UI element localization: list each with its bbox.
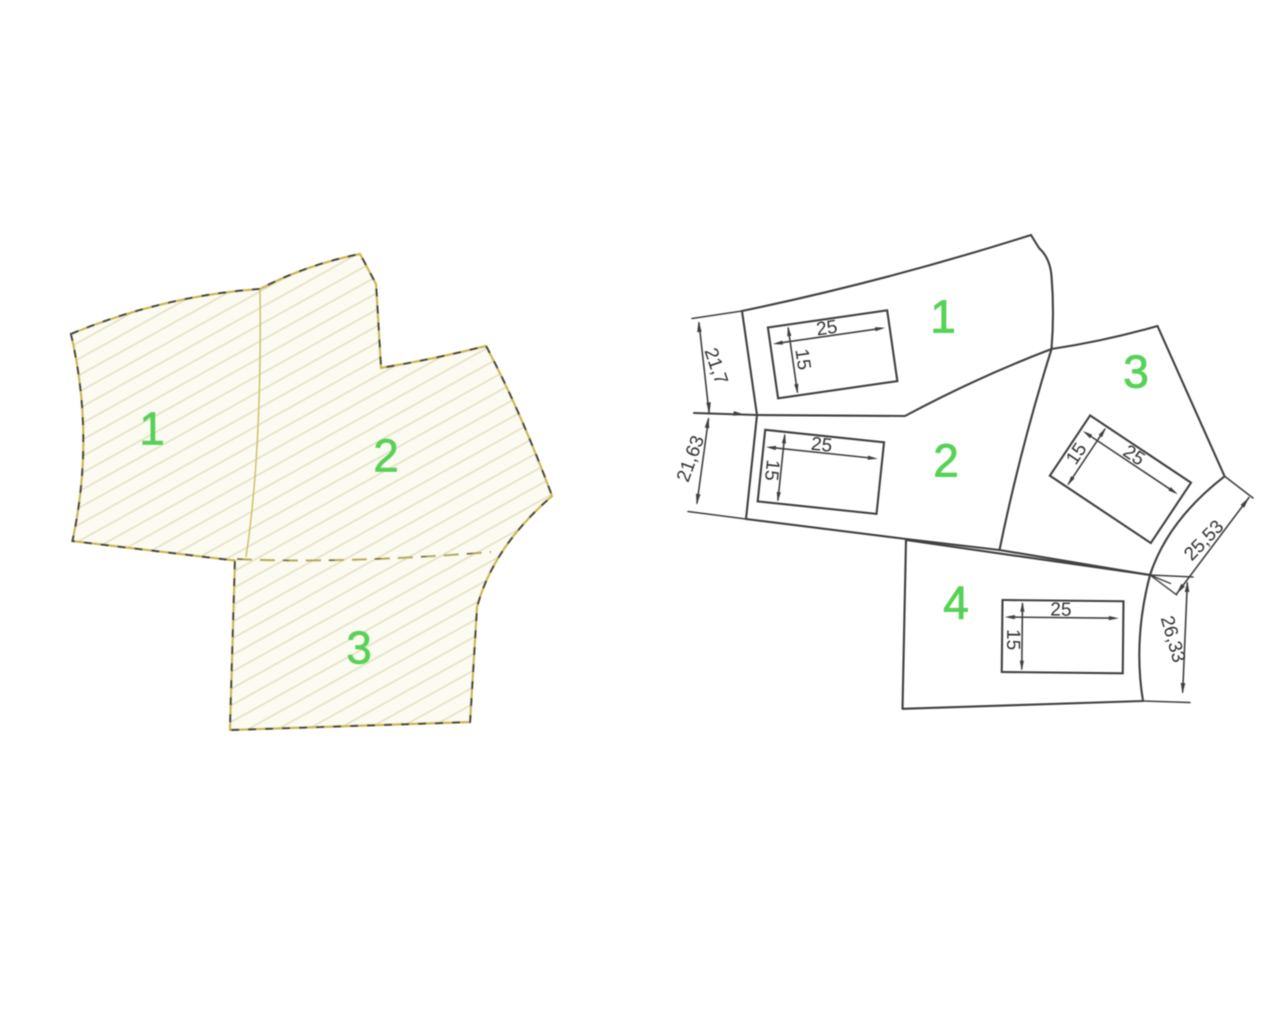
svg-text:15: 15 bbox=[790, 348, 814, 372]
svg-text:1: 1 bbox=[139, 403, 165, 455]
svg-text:15: 15 bbox=[760, 459, 783, 482]
svg-text:2: 2 bbox=[373, 430, 399, 482]
svg-text:25: 25 bbox=[815, 317, 839, 341]
svg-text:25: 25 bbox=[1050, 600, 1071, 621]
svg-text:4: 4 bbox=[943, 577, 969, 629]
svg-text:3: 3 bbox=[346, 622, 372, 674]
svg-text:2: 2 bbox=[933, 435, 959, 487]
svg-text:1: 1 bbox=[930, 291, 956, 343]
svg-text:3: 3 bbox=[1123, 346, 1149, 398]
svg-text:25: 25 bbox=[810, 434, 833, 457]
svg-text:15: 15 bbox=[1002, 629, 1023, 650]
